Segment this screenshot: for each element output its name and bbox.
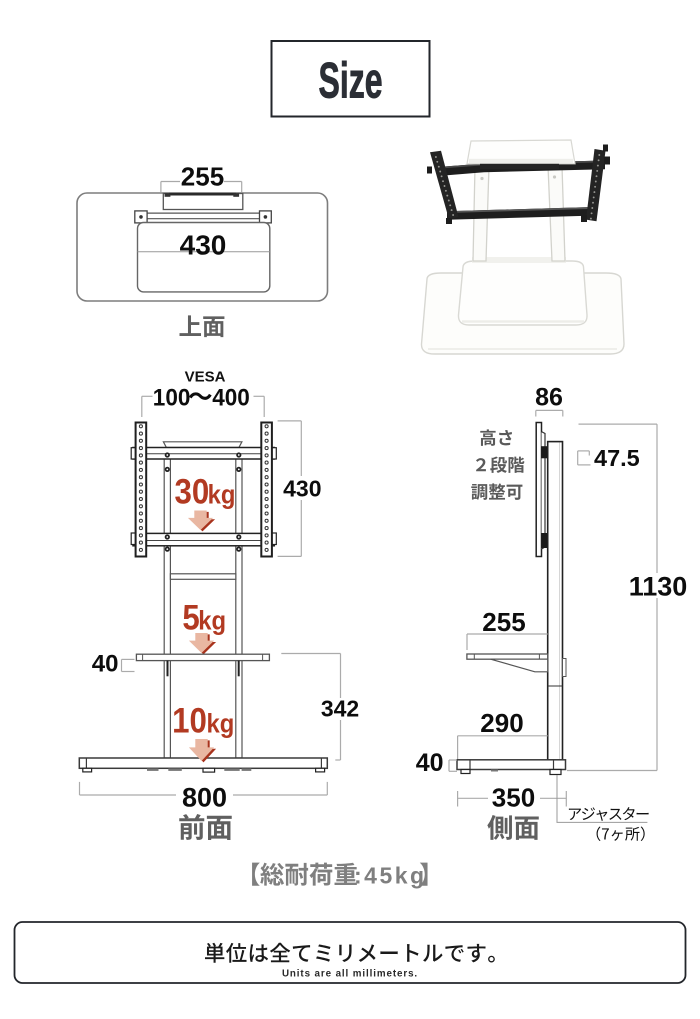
svg-text:350: 350: [492, 783, 535, 813]
svg-text:400: 400: [212, 384, 250, 411]
svg-text:255: 255: [482, 607, 525, 637]
svg-text:47.5: 47.5: [594, 445, 640, 471]
svg-text:Size: Size: [318, 52, 382, 108]
svg-text:342: 342: [321, 695, 359, 721]
svg-text::45kg: :45kg: [354, 863, 427, 889]
svg-text:430: 430: [180, 230, 227, 261]
svg-text:430: 430: [283, 475, 321, 501]
svg-text:40: 40: [92, 650, 119, 677]
svg-text:40: 40: [416, 749, 444, 777]
svg-text:1130: 1130: [629, 572, 688, 602]
svg-text:5: 5: [182, 599, 199, 638]
svg-text:kg: kg: [207, 709, 235, 738]
svg-text:Units are all millimeters.: Units are all millimeters.: [282, 969, 418, 980]
svg-text:800: 800: [182, 783, 227, 813]
svg-text:kg: kg: [208, 480, 236, 509]
svg-text:255: 255: [181, 162, 224, 192]
svg-text:86: 86: [535, 384, 563, 412]
svg-text:30: 30: [175, 473, 210, 512]
svg-text:10: 10: [172, 702, 207, 741]
svg-text:kg: kg: [198, 606, 226, 635]
svg-text:290: 290: [480, 708, 523, 738]
svg-text:100: 100: [153, 384, 191, 411]
